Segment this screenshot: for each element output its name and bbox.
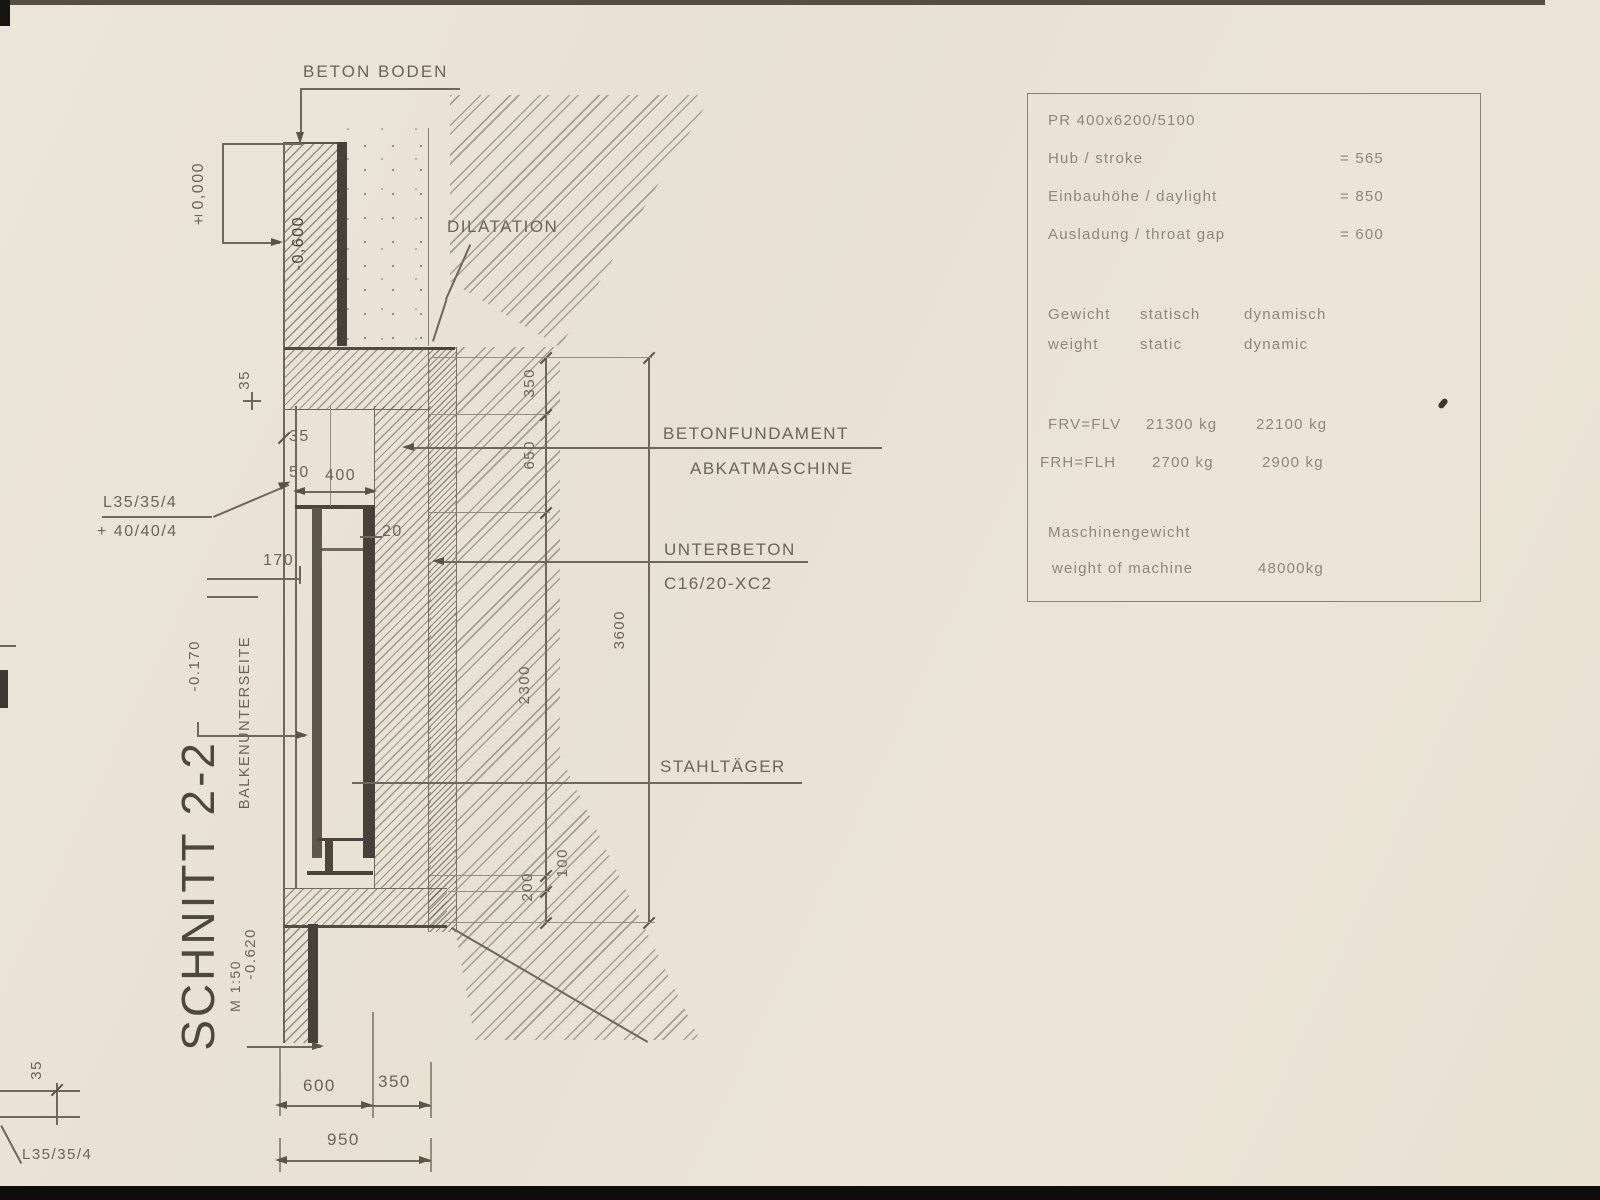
level-zero-bracket-v bbox=[222, 143, 224, 243]
spec-row-value: = 565 bbox=[1340, 150, 1384, 167]
dim-arrow bbox=[361, 1101, 373, 1109]
spec-row-label: Hub / stroke bbox=[1048, 150, 1143, 167]
underconcrete-strip bbox=[428, 347, 457, 932]
label-angle-profile: L35/35/4 bbox=[103, 494, 177, 512]
steel-beam-base-line bbox=[307, 871, 373, 875]
dim-arrow bbox=[275, 1101, 287, 1109]
level-minus170-arrow bbox=[296, 731, 308, 739]
weight-row-name: FRV=FLV bbox=[1048, 416, 1121, 433]
dim-label-400: 400 bbox=[325, 467, 356, 485]
dim-600-350-line bbox=[279, 1105, 431, 1107]
betonfundament-leader bbox=[408, 447, 882, 449]
dim-400-arrow-right bbox=[365, 487, 377, 495]
sheet-bottom-bar bbox=[0, 1186, 1600, 1200]
stahltraeger-leader bbox=[352, 782, 802, 784]
spec-row-label: Ausladung / throat gap bbox=[1048, 226, 1225, 243]
weight-row-static: 2700 kg bbox=[1152, 454, 1214, 471]
sheet-top-edge-line bbox=[0, 0, 1545, 5]
label-unterbeton: UNTERBETON bbox=[664, 540, 796, 560]
dim-400-line bbox=[295, 491, 375, 493]
steel-beam-stiffener bbox=[325, 841, 333, 873]
betonfundament-arrow bbox=[402, 443, 414, 451]
foundation-top-slab bbox=[284, 347, 430, 410]
foundation-bottom-slab bbox=[284, 888, 447, 928]
spec-row-value: = 850 bbox=[1340, 188, 1384, 205]
spec-model: PR 400x6200/5100 bbox=[1048, 112, 1196, 129]
dilatation-leader-2 bbox=[432, 299, 447, 341]
weight-row-name: FRH=FLH bbox=[1040, 454, 1116, 471]
steel-beam-left-chord bbox=[312, 508, 322, 858]
dim-35bl-line-1 bbox=[0, 1090, 80, 1092]
label-balkenunterseite: BALKENUNTERSEITE bbox=[237, 636, 254, 809]
foundation-top-edge-ext bbox=[430, 347, 455, 350]
sheet-left-edge-dash bbox=[0, 645, 16, 647]
weights-header-en: static bbox=[1140, 336, 1182, 353]
angle-profile-leader bbox=[213, 484, 289, 517]
wall-lower-dark-strip bbox=[308, 924, 318, 1043]
level-zero-label: ±0,000 bbox=[190, 162, 208, 228]
dim-label-350b: 350 bbox=[378, 1072, 411, 1092]
level-minus600-label: -0,600 bbox=[290, 216, 308, 270]
level-minus620-leader bbox=[247, 1046, 321, 1048]
level-minus620-arrow bbox=[312, 1042, 324, 1050]
weights-header-de: dynamisch bbox=[1244, 306, 1327, 323]
weight-row-dynamic: 22100 kg bbox=[1256, 416, 1327, 433]
label-angle-profile-bottom: L35/35/4 bbox=[22, 1146, 92, 1163]
level-minus170-label: -0.170 bbox=[186, 640, 203, 692]
wall-lower-hatch bbox=[283, 924, 308, 1043]
dim-label-2300: 2300 bbox=[516, 665, 533, 704]
dim-170-line-2 bbox=[207, 596, 258, 598]
weights-header-en: dynamic bbox=[1244, 336, 1308, 353]
section-title: SCHNITT 2-2 bbox=[172, 740, 225, 1051]
weights-header-de: Gewicht bbox=[1048, 306, 1111, 323]
dim-label-600: 600 bbox=[303, 1076, 336, 1096]
dim-950-line bbox=[279, 1160, 431, 1162]
level-zero-arrow bbox=[271, 238, 283, 246]
machine-weight-de: Maschinengewicht bbox=[1048, 524, 1191, 541]
spec-row-label: Einbauhöhe / daylight bbox=[1048, 188, 1217, 205]
dim-label-20: 20 bbox=[382, 523, 403, 541]
level-minus170-bracket-v bbox=[197, 722, 199, 736]
sheet-left-edge-mark bbox=[0, 670, 8, 708]
weight-row-static: 21300 kg bbox=[1146, 416, 1217, 433]
dim-label-950: 950 bbox=[327, 1130, 360, 1150]
dim-arrow bbox=[275, 1156, 287, 1164]
dim-arrow bbox=[419, 1156, 431, 1164]
earth-hatch-band bbox=[455, 347, 705, 1040]
dim-extension-line bbox=[279, 1138, 281, 1172]
dim-35bl-line-2 bbox=[0, 1116, 80, 1118]
dim-extension-line bbox=[430, 1138, 432, 1172]
dim-label-35-top: 35 bbox=[236, 370, 253, 390]
dim-extension-line bbox=[428, 512, 550, 513]
machine-weight-en: weight of machine bbox=[1052, 560, 1193, 577]
steel-beam-web-line-top bbox=[322, 548, 363, 551]
unterbeton-leader bbox=[438, 561, 808, 563]
dim-label-100: 100 bbox=[554, 848, 571, 878]
sheet-corner-mark bbox=[0, 0, 10, 26]
dim-label-50: 50 bbox=[289, 464, 310, 482]
weights-header-en: weight bbox=[1048, 336, 1099, 353]
dim-chain-inner-line bbox=[545, 358, 547, 923]
dim-35-plus-v bbox=[251, 392, 253, 410]
angle-profile-bottom-leader bbox=[1, 1125, 23, 1164]
foundation-right-wall bbox=[374, 406, 431, 888]
section-scale: M 1:50 bbox=[227, 960, 243, 1012]
dim-extension-line bbox=[430, 1062, 432, 1118]
screed-dotted-strip bbox=[347, 128, 429, 346]
dim-arrow bbox=[419, 1101, 431, 1109]
dim-label-3600: 3600 bbox=[611, 610, 628, 649]
dim-extension-line bbox=[447, 922, 655, 923]
dim-chain-outer-line bbox=[648, 358, 650, 923]
dim-400-arrow-left bbox=[293, 487, 305, 495]
dim-extension-line bbox=[432, 357, 652, 358]
label-unterbeton-grade: C16/20-XC2 bbox=[664, 574, 773, 594]
level-minus620-label: -0.620 bbox=[242, 928, 259, 980]
dim-label-35: 35 bbox=[289, 428, 310, 446]
weights-header-de: statisch bbox=[1140, 306, 1200, 323]
machine-weight-value: 48000kg bbox=[1258, 560, 1324, 577]
beton-boden-underline bbox=[300, 88, 460, 90]
dim-170-line-1 bbox=[207, 578, 300, 580]
label-betonfundament: BETONFUNDAMENT bbox=[663, 424, 849, 444]
dim-label-200: 200 bbox=[519, 872, 536, 902]
dim-label-35-bottomleft: 35 bbox=[28, 1060, 45, 1080]
dim-extension-line bbox=[428, 414, 550, 415]
dim-label-350: 350 bbox=[521, 368, 538, 398]
dim-20-line bbox=[360, 536, 382, 538]
weight-row-dynamic: 2900 kg bbox=[1262, 454, 1324, 471]
angle-profile-arrow bbox=[278, 478, 292, 490]
label-angle-profile-add: + 40/40/4 bbox=[97, 523, 178, 541]
beton-boden-leader bbox=[300, 88, 302, 136]
technical-drawing-sheet: 350 650 2300 100 200 3600 BETON BODEN ±0… bbox=[0, 0, 1600, 1200]
label-stahltraeger: STAHLTÄGER bbox=[660, 757, 786, 777]
label-dilatation: DILATATION bbox=[447, 217, 558, 237]
label-beton-boden: BETON BODEN bbox=[303, 62, 448, 82]
dim-label-170: 170 bbox=[263, 552, 294, 570]
unterbeton-arrow bbox=[432, 557, 444, 565]
dim-170-tick bbox=[299, 566, 301, 584]
spec-row-value: = 600 bbox=[1340, 226, 1384, 243]
steel-beam-right-chord bbox=[363, 508, 375, 858]
label-abkantmaschine: ABKATMASCHINE bbox=[690, 459, 854, 479]
angle-profile-underline bbox=[102, 516, 212, 518]
level-zero-bracket-h bbox=[222, 143, 302, 145]
wall-upper-dark-strip bbox=[337, 142, 347, 346]
dim-label-650: 650 bbox=[521, 440, 538, 470]
